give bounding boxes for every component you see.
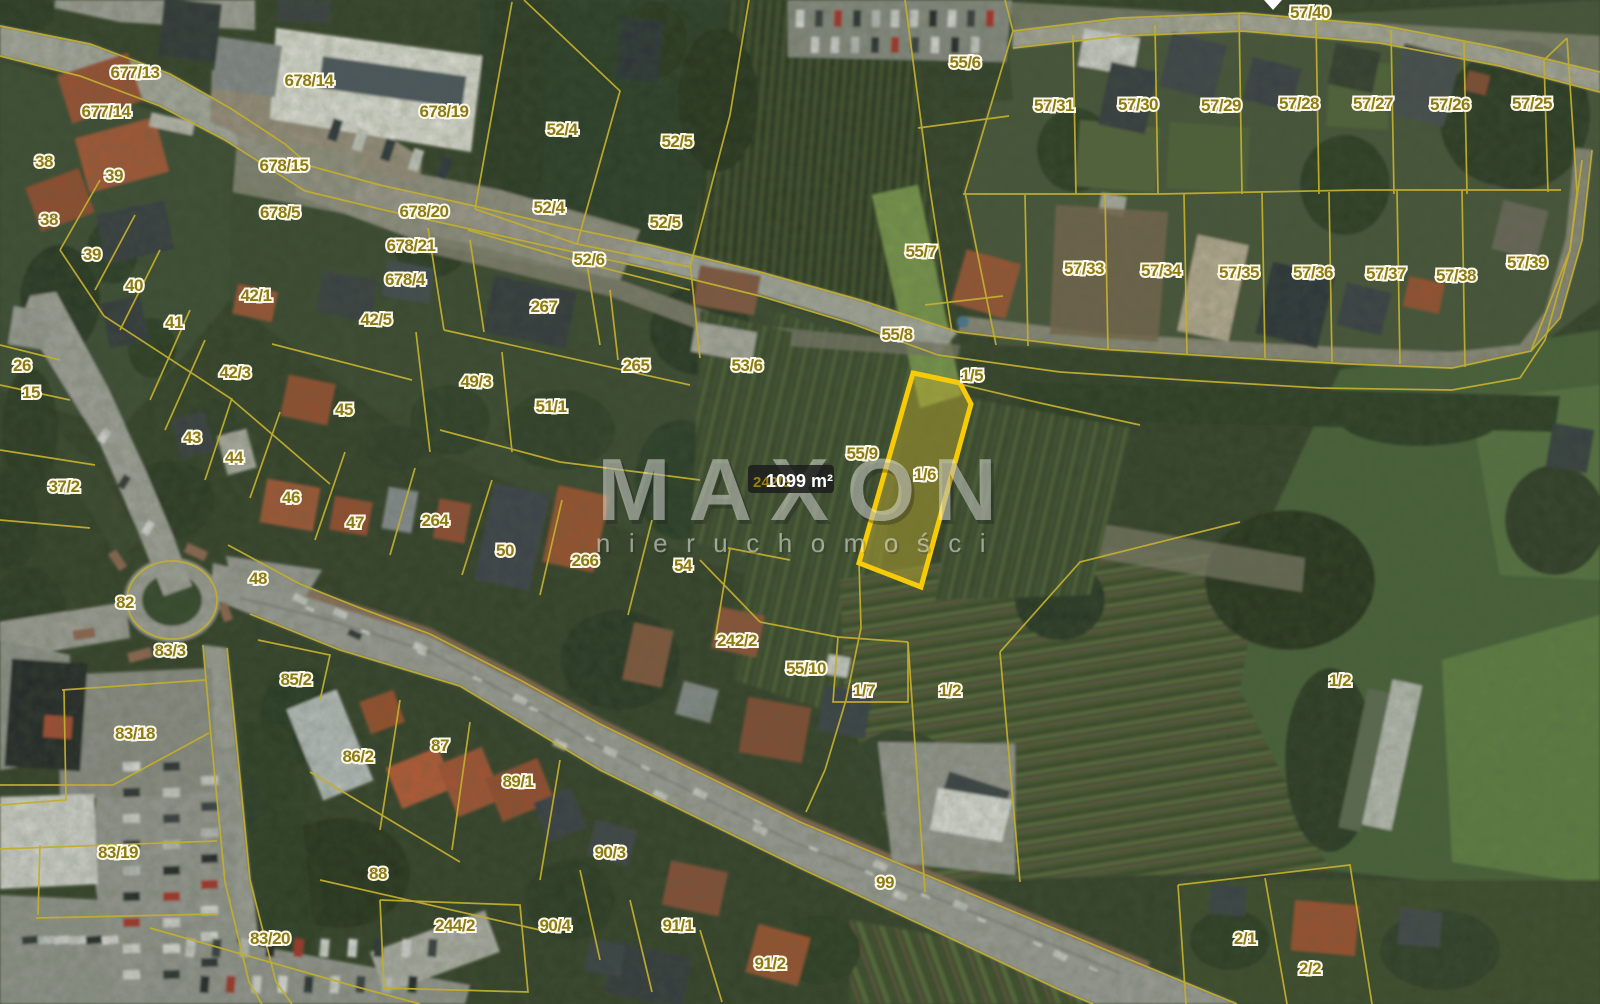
svg-text:55/10: 55/10 xyxy=(786,659,826,678)
svg-text:42/1: 42/1 xyxy=(240,286,271,305)
svg-text:57/38: 57/38 xyxy=(1436,266,1476,285)
svg-text:57/31: 57/31 xyxy=(1034,96,1074,115)
svg-text:54: 54 xyxy=(674,556,693,575)
svg-text:267: 267 xyxy=(531,297,558,316)
svg-text:42/3: 42/3 xyxy=(219,363,250,382)
svg-text:86/2: 86/2 xyxy=(342,747,373,766)
svg-text:57/29: 57/29 xyxy=(1201,96,1241,115)
svg-text:242/2: 242/2 xyxy=(717,631,757,650)
svg-text:57/37: 57/37 xyxy=(1366,264,1406,283)
svg-text:57/33: 57/33 xyxy=(1064,259,1104,278)
svg-text:85/2: 85/2 xyxy=(280,670,311,689)
svg-text:52/6: 52/6 xyxy=(573,250,604,269)
svg-text:57/39: 57/39 xyxy=(1507,253,1547,272)
svg-text:57/40: 57/40 xyxy=(1290,3,1330,22)
svg-text:52/5: 52/5 xyxy=(649,213,680,232)
svg-text:99: 99 xyxy=(876,873,894,892)
svg-text:41: 41 xyxy=(165,313,183,332)
svg-text:38: 38 xyxy=(40,210,58,229)
svg-text:39: 39 xyxy=(105,166,123,185)
svg-text:89/1: 89/1 xyxy=(502,772,533,791)
svg-text:678/20: 678/20 xyxy=(400,202,449,221)
svg-text:57/36: 57/36 xyxy=(1293,263,1333,282)
svg-text:678/14: 678/14 xyxy=(285,71,335,90)
svg-text:43: 43 xyxy=(183,428,201,447)
svg-text:677/13: 677/13 xyxy=(111,63,160,82)
svg-text:1/7: 1/7 xyxy=(853,681,875,700)
svg-text:677/14: 677/14 xyxy=(82,102,132,121)
svg-text:678/21: 678/21 xyxy=(387,236,436,255)
svg-text:50: 50 xyxy=(496,541,514,560)
svg-text:265: 265 xyxy=(623,356,650,375)
svg-text:83/20: 83/20 xyxy=(250,929,290,948)
svg-text:266: 266 xyxy=(572,551,599,570)
svg-text:88: 88 xyxy=(369,864,387,883)
svg-text:42/5: 42/5 xyxy=(360,310,391,329)
svg-text:55/6: 55/6 xyxy=(949,53,980,72)
svg-text:57/28: 57/28 xyxy=(1279,94,1319,113)
svg-text:37/2: 37/2 xyxy=(48,477,79,496)
svg-text:83/18: 83/18 xyxy=(115,724,155,743)
svg-text:1099 m²: 1099 m² xyxy=(766,471,833,491)
svg-text:47: 47 xyxy=(346,513,364,532)
svg-text:26: 26 xyxy=(13,356,31,375)
svg-text:1/6: 1/6 xyxy=(914,465,936,484)
svg-text:57/26: 57/26 xyxy=(1430,95,1470,114)
svg-text:57/30: 57/30 xyxy=(1118,95,1158,114)
svg-text:45: 45 xyxy=(335,400,353,419)
svg-text:nieruchomości: nieruchomości xyxy=(596,528,1004,558)
svg-text:57/35: 57/35 xyxy=(1219,263,1259,282)
svg-text:52/4: 52/4 xyxy=(533,198,565,217)
svg-text:90/3: 90/3 xyxy=(594,843,625,862)
svg-text:82: 82 xyxy=(116,593,134,612)
svg-text:53/6: 53/6 xyxy=(731,356,762,375)
svg-text:40: 40 xyxy=(125,276,143,295)
svg-text:44: 44 xyxy=(225,448,244,467)
svg-text:48: 48 xyxy=(249,569,267,588)
svg-text:1/2: 1/2 xyxy=(1329,671,1351,690)
svg-text:678/4: 678/4 xyxy=(385,270,426,289)
svg-text:83/3: 83/3 xyxy=(154,641,185,660)
svg-text:38: 38 xyxy=(35,152,53,171)
svg-text:91/1: 91/1 xyxy=(662,916,693,935)
svg-text:91/2: 91/2 xyxy=(754,954,785,973)
svg-text:678/15: 678/15 xyxy=(260,156,309,175)
svg-text:678/5: 678/5 xyxy=(260,203,300,222)
svg-text:51/1: 51/1 xyxy=(535,397,566,416)
svg-text:87: 87 xyxy=(431,736,449,755)
svg-text:57/34: 57/34 xyxy=(1141,261,1182,280)
svg-text:49/3: 49/3 xyxy=(460,372,491,391)
svg-text:2/1: 2/1 xyxy=(1234,929,1256,948)
svg-text:678/19: 678/19 xyxy=(420,102,469,121)
svg-text:264: 264 xyxy=(422,511,450,530)
svg-text:1/2: 1/2 xyxy=(939,681,961,700)
svg-text:83/19: 83/19 xyxy=(98,843,138,862)
svg-text:15: 15 xyxy=(22,383,40,402)
svg-text:1/5: 1/5 xyxy=(961,366,983,385)
svg-text:52/5: 52/5 xyxy=(661,132,692,151)
svg-text:2/2: 2/2 xyxy=(1299,959,1321,978)
svg-text:39: 39 xyxy=(83,245,101,264)
svg-text:55/7: 55/7 xyxy=(905,242,936,261)
svg-text:244/2: 244/2 xyxy=(435,916,475,935)
svg-text:90/4: 90/4 xyxy=(539,916,571,935)
svg-text:57/25: 57/25 xyxy=(1512,94,1552,113)
svg-text:55/9: 55/9 xyxy=(846,444,877,463)
svg-text:55/8: 55/8 xyxy=(881,325,912,344)
svg-text:46: 46 xyxy=(282,488,300,507)
svg-text:57/27: 57/27 xyxy=(1353,94,1393,113)
svg-text:52/4: 52/4 xyxy=(546,120,578,139)
